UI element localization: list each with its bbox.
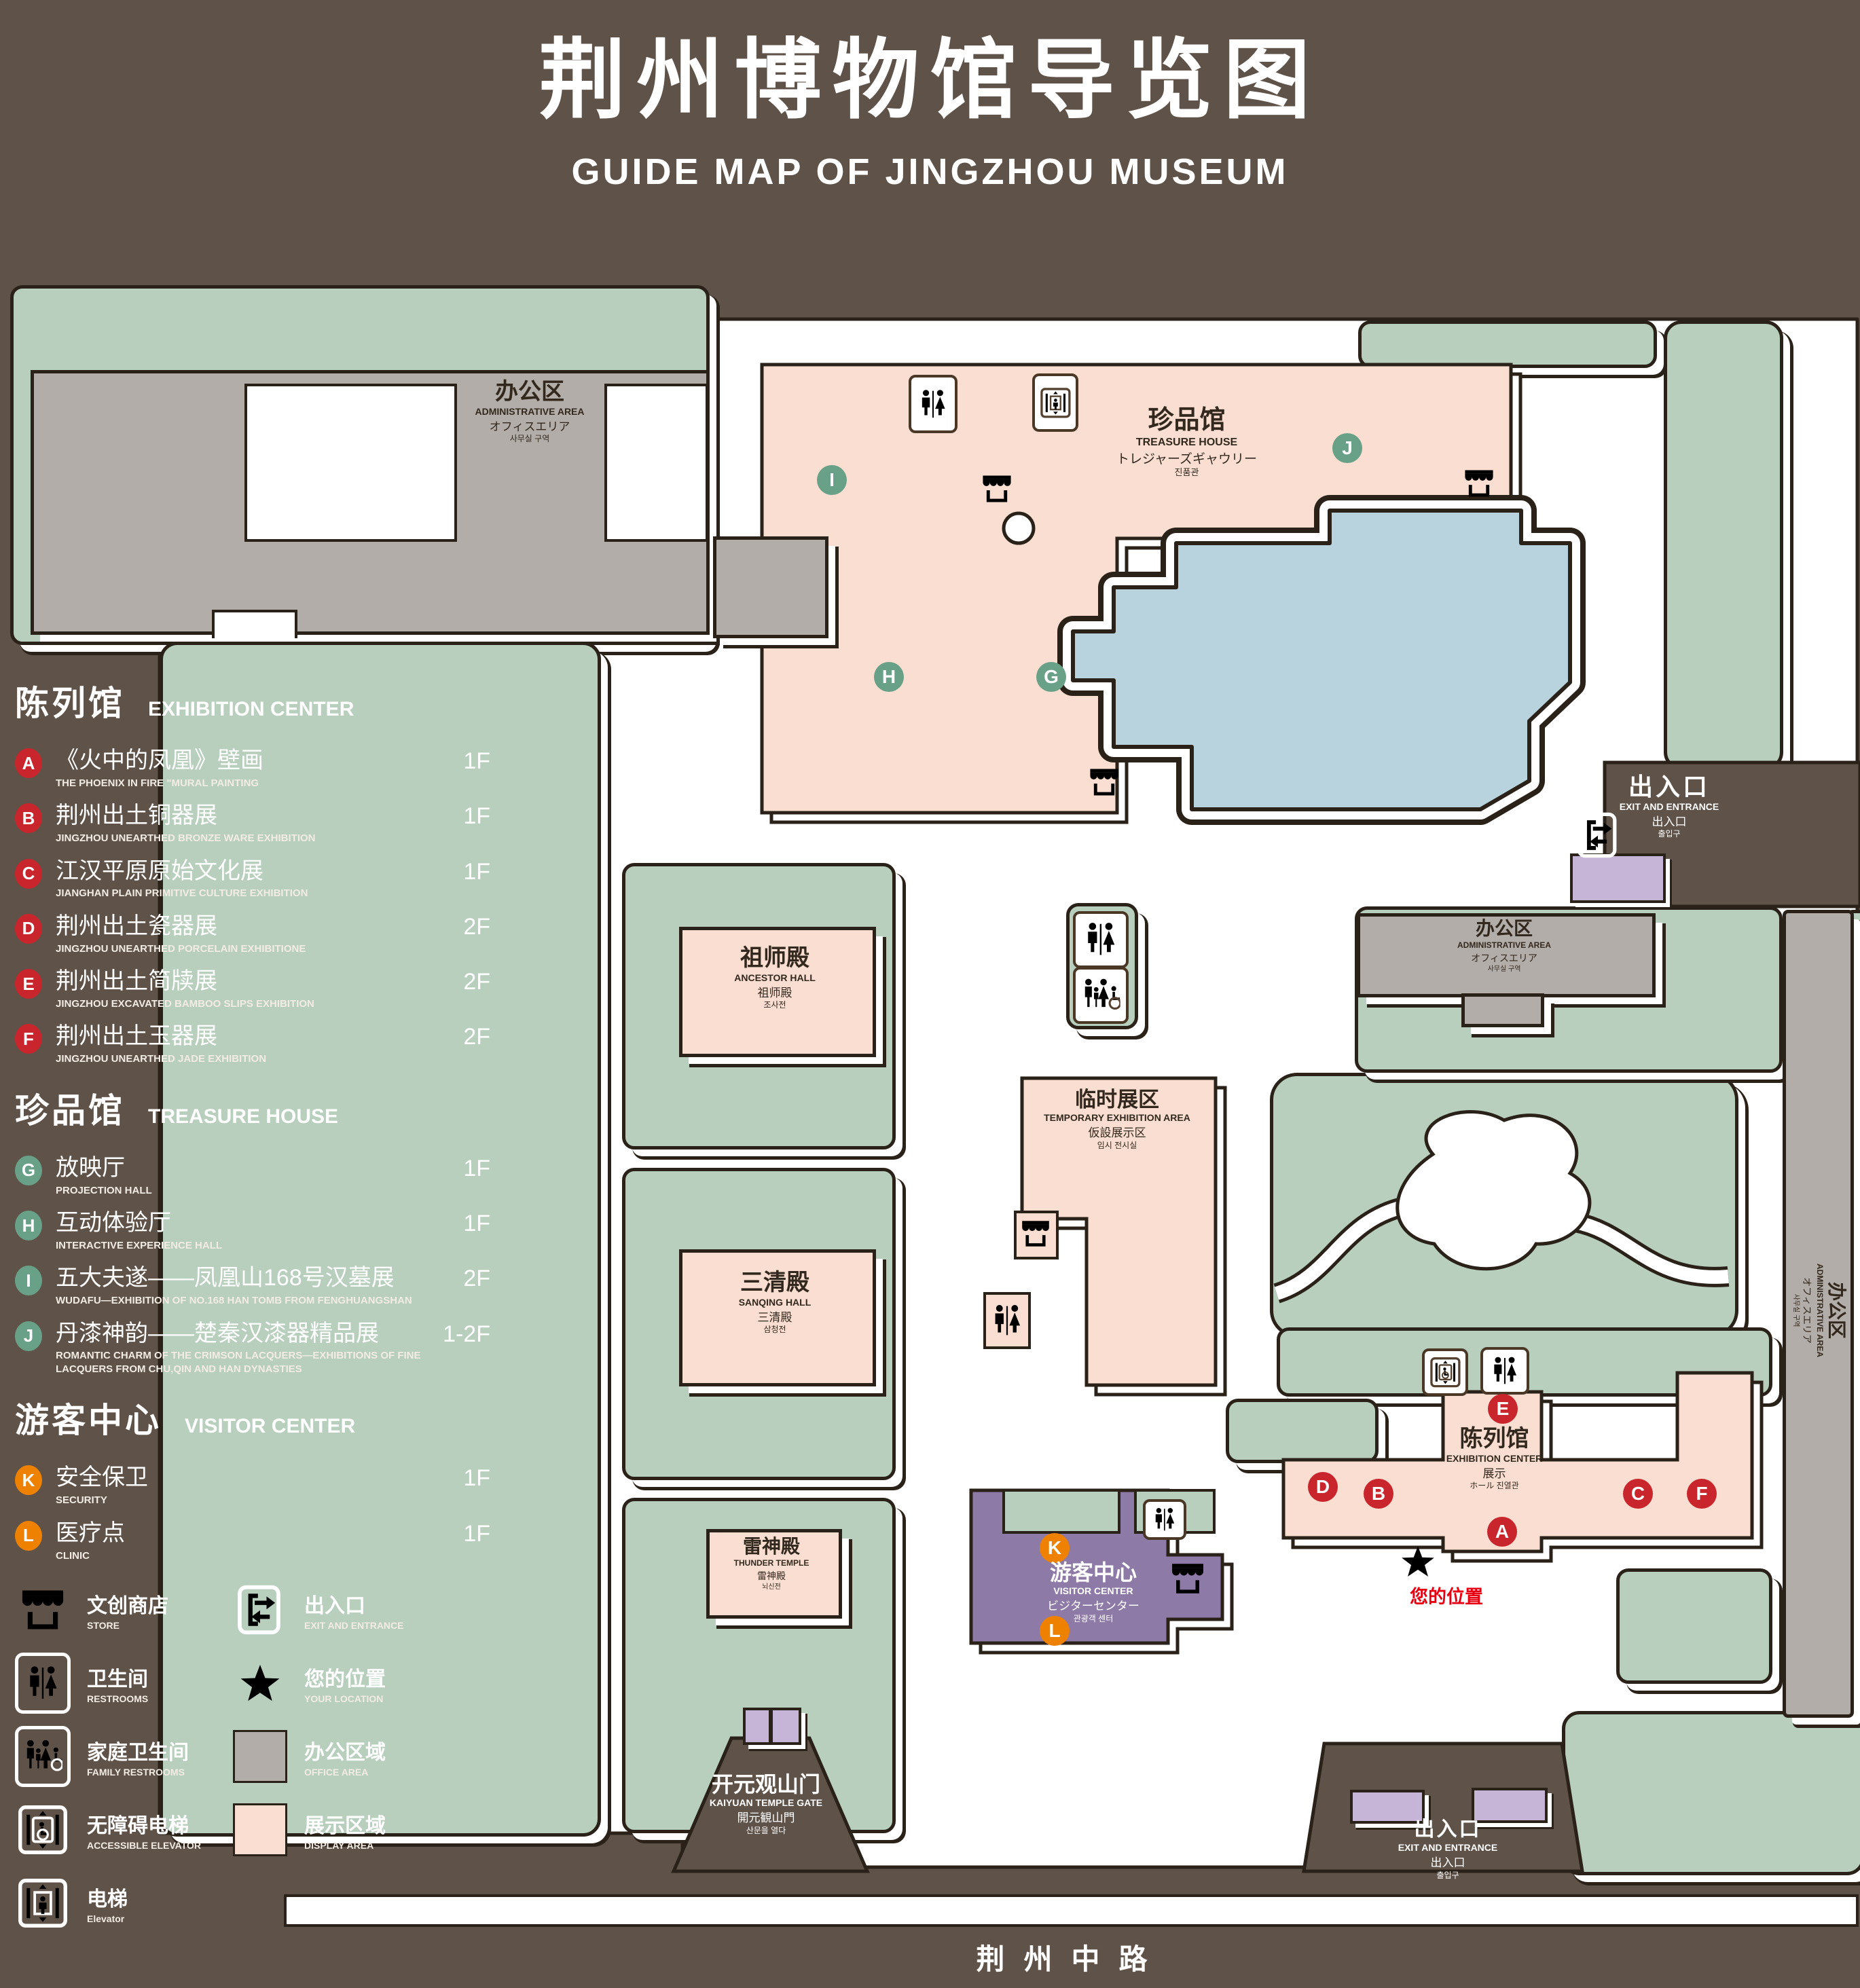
section-visitor-center: 游客中心 VISITOR CENTER <box>15 1393 490 1442</box>
section-treasure-house: 珍品馆 TREASURE HOUSE <box>15 1084 490 1133</box>
thunder-label: 雷神殿THUNDER TEMPLE 雷神殿뇌신전 <box>710 1536 833 1591</box>
exit-icon <box>232 1584 288 1636</box>
gate-label: 开元观山门KAIYUAN TEMPLE GATE 開元観山門산문을 열다 <box>664 1772 868 1835</box>
marker-J: J <box>1332 433 1362 463</box>
legend-exit: 出入口 EXIT AND ENTRANCE <box>232 1579 450 1641</box>
store-icon <box>15 1584 71 1636</box>
restrooms-icon <box>987 1302 1027 1339</box>
road-name: 荆州中路 <box>285 1936 1857 1978</box>
restrooms-icon <box>15 1653 71 1714</box>
store-icon <box>1017 1217 1054 1251</box>
marker-A: A <box>1487 1517 1517 1547</box>
badge-I: I <box>15 1266 42 1295</box>
list-item-D: D 荆州出土瓷器展 2F JINGZHOU UNEARTHED PORCELAI… <box>15 913 490 955</box>
gate-block-left <box>743 1708 771 1745</box>
store-icon <box>1085 765 1123 800</box>
your-location-label: 您的位置 <box>1385 1582 1508 1608</box>
badge-L: L <box>15 1521 42 1551</box>
badge-J: J <box>15 1321 42 1351</box>
legend-family-restrooms: 家庭卫生间 FAMILY RESTROOMS <box>15 1725 232 1788</box>
list-item-H: H 互动体验厅 1F INTERACTIVE EXPERIENCE HALL <box>15 1209 490 1252</box>
marker-E: E <box>1488 1394 1518 1424</box>
badge-E: E <box>15 969 42 999</box>
east-exit-label: 出入口EXIT AND ENTRANCE 出入口출입구 <box>1582 773 1756 839</box>
temporary-label: 临时展区TEMPORARY EXHIBITION AREA 仮設展示区임시 전시… <box>1015 1088 1219 1150</box>
east-exit-gatehouse <box>1570 853 1666 903</box>
badge-A: A <box>15 748 42 778</box>
south-exit-label: 出入口EXIT AND ENTRANCE 出入口출입구 <box>1361 1818 1535 1880</box>
location-star-icon <box>232 1662 288 1704</box>
list-item-J: J 丹漆神韵——楚秦汉漆器精品展 1-2F ROMANTIC CHARM OF … <box>15 1320 490 1376</box>
elevator-icon <box>1032 373 1078 432</box>
list-item-C: C 江汉平原原始文化展 1F JIANGHAN PLAIN PRIMITIVE … <box>15 858 490 900</box>
marker-H: H <box>874 662 904 692</box>
gate-block-right <box>770 1708 801 1745</box>
badge-C: C <box>15 859 42 889</box>
marker-G: G <box>1036 662 1066 692</box>
admin-east-label: 办公区ADMINISTRATIVE AREA オフィスエリア사무실 구역 <box>1416 918 1592 973</box>
treasure-court-circle <box>1004 513 1034 543</box>
visitor-lawn-notch-1 <box>1004 1490 1119 1532</box>
marker-F: F <box>1687 1479 1717 1509</box>
restrooms-icon <box>1073 911 1129 968</box>
pond-water <box>1073 511 1570 809</box>
visitor-label: 游客中心VISITOR CENTER ビジターセンター관광객 센터 <box>988 1560 1199 1623</box>
ancestor-label: 祖师殿ANCESTOR HALL 祖师殿조사전 <box>686 945 864 1010</box>
badge-D: D <box>15 914 42 944</box>
family-restrooms-icon <box>1073 967 1129 1024</box>
accessible-elevator-icon <box>1422 1348 1468 1396</box>
admin-notch <box>212 610 297 638</box>
marker-C: C <box>1623 1479 1653 1509</box>
office-area-swatch <box>232 1730 288 1783</box>
legend-office-area: 办公区域 OFFICE AREA <box>232 1725 450 1788</box>
badge-K: K <box>15 1465 42 1495</box>
admin-strip-label: 办公区ADMINISTRATIVE AREA オフィスエリア사무실 구역 <box>1782 1175 1847 1446</box>
badge-F: F <box>15 1024 42 1054</box>
legend-key: 文创商店 STORE 出入口 EXIT AND ENTRANCE 卫生间 RES… <box>15 1579 490 1934</box>
list-item-A: A 《火中的凤凰》壁画 1F THE PHOENIX IN FIRE "MURA… <box>15 747 490 790</box>
restrooms-icon <box>1143 1499 1186 1540</box>
list-item-L: L 医疗点 1F CLINIC <box>15 1520 490 1562</box>
family-restrooms-icon <box>15 1726 71 1787</box>
legend-restrooms: 卫生间 RESTROOMS <box>15 1652 232 1714</box>
legend-sidebar: 陈列馆 EXHIBITION CENTER A 《火中的凤凰》壁画 1F THE… <box>15 676 490 1945</box>
list-item-F: F 荆州出土玉器展 2F JINGZHOU UNEARTHED JADE EXH… <box>15 1023 490 1065</box>
list-item-G: G 放映厅 1F PROJECTION HALL <box>15 1154 490 1197</box>
legend-accessible-elevator: 无障碍电梯 ACCESSIBLE ELEVATOR <box>15 1799 232 1861</box>
sanqing-label: 三清殿SANQING HALL 三清殿삼청전 <box>686 1270 864 1335</box>
admin-top-label: 办公区ADMINISTRATIVE AREA オフィスエリア사무실 구역 <box>435 379 625 444</box>
legend-elevator: 电梯 Elevator <box>15 1872 232 1934</box>
display-area-swatch <box>232 1803 288 1856</box>
elevator-icon <box>15 1877 71 1929</box>
marker-K: K <box>1040 1533 1070 1563</box>
admin-top-wing <box>713 536 828 638</box>
section-exhibition-center: 陈列馆 EXHIBITION CENTER <box>15 676 490 725</box>
restrooms-icon <box>1480 1347 1529 1395</box>
list-item-K: K 安全保卫 1F SECURITY <box>15 1464 490 1507</box>
badge-B: B <box>15 803 42 833</box>
admin-courtyard-left <box>244 384 457 542</box>
badge-G: G <box>15 1156 42 1185</box>
restrooms-icon <box>909 375 958 433</box>
list-item-B: B 荆州出土铜器展 1F JINGZHOU UNEARTHED BRONZE W… <box>15 802 490 845</box>
garden-path-1 <box>1277 1207 1402 1293</box>
marker-B: B <box>1364 1479 1393 1509</box>
legend-display-area: 展示区域 DISPLAY AREA <box>232 1799 450 1861</box>
badge-H: H <box>15 1211 42 1240</box>
marker-I: I <box>817 465 847 495</box>
admin-east-tab <box>1461 993 1544 1027</box>
treasure-label: 珍品馆TREASURE HOUSE トレジャーズギャウリー진품관 <box>1083 406 1290 478</box>
marker-D: D <box>1308 1472 1338 1502</box>
store-icon <box>978 471 1016 507</box>
guide-map-poster: 荆州博物馆导览图 GUIDE MAP OF JINGZHOU MUSEUM <box>0 0 1860 1988</box>
exhibition-label: 陈列馆EXHIBITION CENTER 展示ホール 진열관 <box>1391 1426 1598 1491</box>
list-item-I: I 五大夫遂——凤凰山168号汉墓展 2F WUDAFU—EXHIBITION … <box>15 1264 490 1307</box>
legend-store: 文创商店 STORE <box>15 1579 232 1641</box>
store-icon <box>1460 466 1498 501</box>
legend-your-location: 您的位置 YOUR LOCATION <box>232 1652 450 1714</box>
garden-pond-blob <box>1398 1111 1590 1268</box>
location-star-icon <box>1400 1544 1436 1579</box>
list-item-E: E 荆州出土简牍展 2F JINGZHOU EXCAVATED BAMBOO S… <box>15 968 490 1010</box>
accessible-elevator-icon <box>15 1804 71 1856</box>
